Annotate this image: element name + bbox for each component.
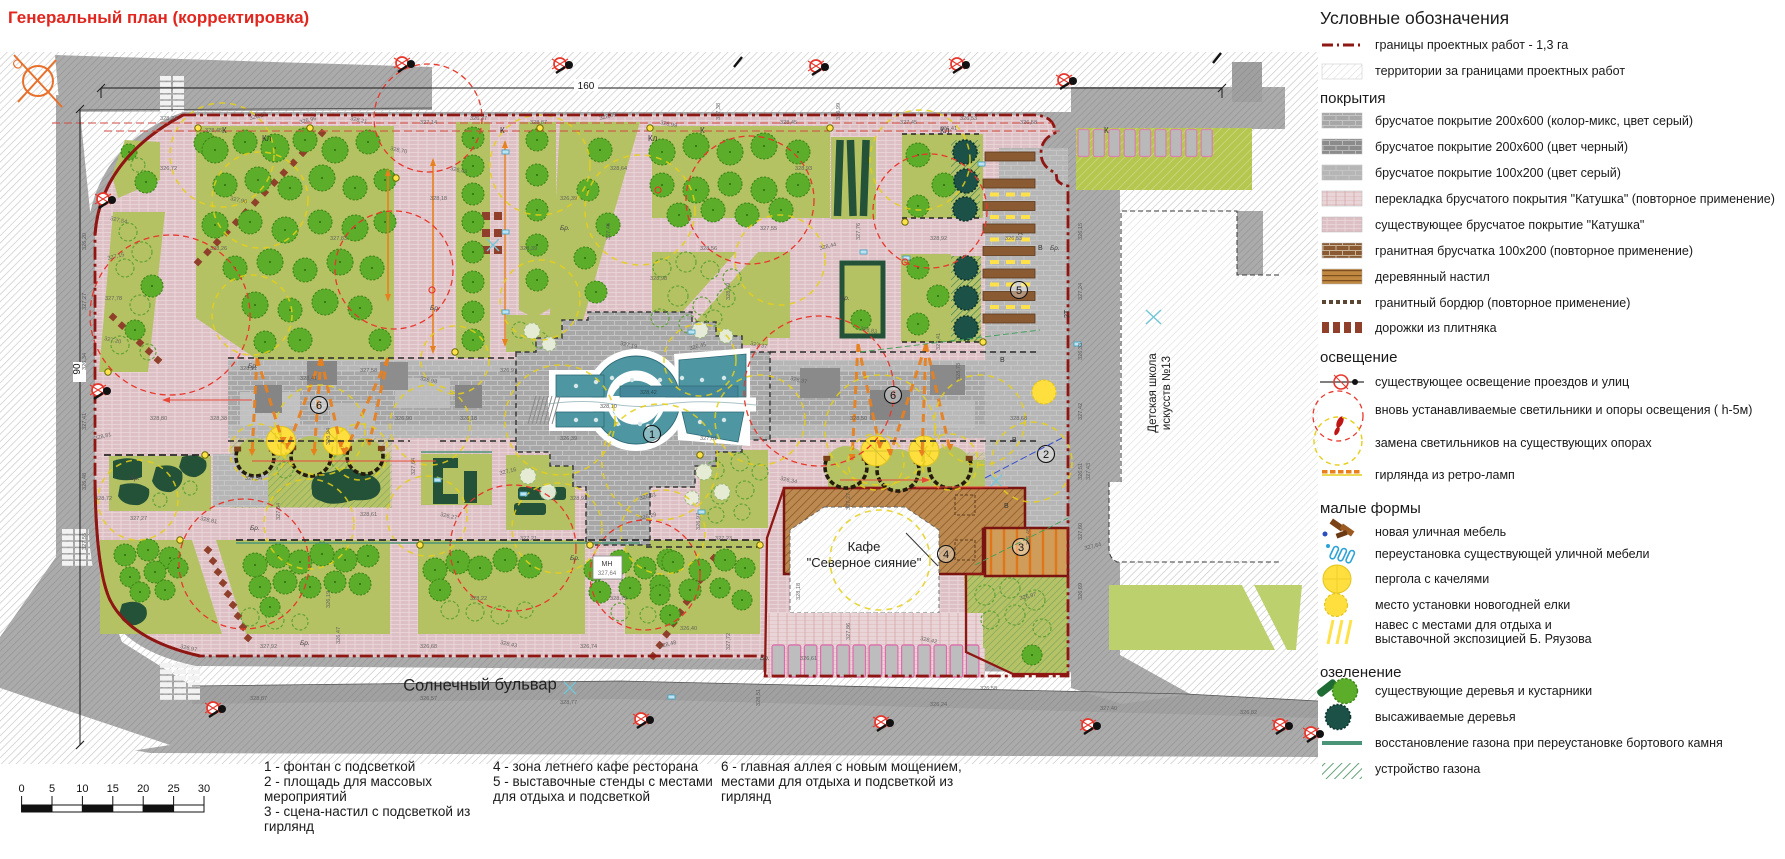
svg-text:327,27: 327,27: [846, 493, 852, 510]
svg-text:местами для отдыха и подсветко: местами для отдыха и подсветкой из: [721, 774, 953, 789]
svg-text:Бр.: Бр.: [248, 363, 258, 370]
svg-text:Бр.: Бр.: [760, 655, 770, 662]
svg-text:328,93: 328,93: [795, 166, 812, 172]
svg-text:0: 0: [19, 783, 25, 795]
svg-text:326,97: 326,97: [500, 368, 517, 374]
svg-text:Бр.: Бр.: [250, 525, 260, 532]
svg-text:326,24: 326,24: [930, 702, 947, 708]
svg-text:2Т: 2Т: [1064, 309, 1071, 318]
svg-text:новая уличная мебель: новая уличная мебель: [1375, 525, 1506, 539]
svg-text:существующие деревья и кустарн: существующие деревья и кустарники: [1375, 684, 1592, 698]
svg-text:замена светильников на существ: замена светильников на существующих опор…: [1375, 436, 1652, 450]
svg-text:В: В: [1012, 437, 1017, 444]
svg-text:326,20: 326,20: [82, 233, 88, 250]
svg-text:328,41: 328,41: [300, 376, 317, 382]
svg-text:328,42: 328,42: [640, 390, 657, 396]
svg-text:326,40: 326,40: [680, 626, 697, 632]
svg-text:Генеральный план (корректировк: Генеральный план (корректировка): [8, 8, 309, 27]
svg-text:В: В: [1038, 245, 1043, 252]
svg-text:160: 160: [578, 81, 595, 92]
svg-text:328,80: 328,80: [150, 416, 167, 422]
svg-text:326,61: 326,61: [800, 656, 817, 662]
svg-text:327,55: 327,55: [82, 533, 88, 550]
svg-text:гирлянд: гирлянд: [721, 789, 771, 804]
svg-text:5: 5: [49, 783, 55, 795]
svg-text:Кл: Кл: [262, 134, 272, 143]
svg-text:существующее брусчатое покрыти: существующее брусчатое покрытие "Катушка…: [1375, 218, 1644, 232]
svg-text:В: В: [1000, 357, 1005, 364]
svg-text:восстановление газона при пере: восстановление газона при переустановке …: [1375, 736, 1723, 750]
svg-text:327,86: 327,86: [846, 623, 852, 640]
svg-text:Бр.: Бр.: [1050, 245, 1060, 252]
svg-text:328,87: 328,87: [250, 696, 267, 702]
svg-text:327,41: 327,41: [82, 413, 88, 430]
svg-text:327,41: 327,41: [936, 333, 942, 350]
svg-text:326,68: 326,68: [420, 644, 437, 650]
svg-text:гирлянд: гирлянд: [264, 819, 314, 834]
svg-text:327,40: 327,40: [1100, 706, 1117, 712]
svg-text:326,82: 326,82: [1240, 710, 1257, 716]
svg-text:5: 5: [1016, 285, 1022, 297]
svg-text:328,92: 328,92: [930, 236, 947, 242]
svg-text:2 - площадь для массовых: 2 - площадь для массовых: [264, 774, 432, 789]
svg-text:327,45: 327,45: [900, 120, 917, 126]
svg-text:Детская школа: Детская школа: [1147, 353, 1159, 433]
svg-text:328,56: 328,56: [700, 246, 717, 252]
svg-text:326,39: 326,39: [560, 436, 577, 442]
svg-text:327,72: 327,72: [726, 633, 732, 650]
svg-text:326,90: 326,90: [395, 416, 412, 422]
svg-text:328,61: 328,61: [360, 512, 377, 518]
svg-text:"Северное сияние": "Северное сияние": [807, 555, 922, 570]
svg-text:326,53: 326,53: [960, 116, 977, 122]
svg-text:327,60: 327,60: [1078, 523, 1084, 540]
svg-text:Бр.: Бр.: [560, 225, 570, 232]
svg-text:327,58: 327,58: [360, 368, 377, 374]
svg-text:6: 6: [316, 400, 322, 412]
svg-text:328,18: 328,18: [430, 196, 447, 202]
svg-text:Условные обозначения: Условные обозначения: [1320, 8, 1509, 28]
svg-text:границы проектных работ - 1,3: границы проектных работ - 1,3 га: [1375, 38, 1568, 52]
svg-text:327,55: 327,55: [760, 226, 777, 232]
svg-text:327,14: 327,14: [420, 120, 437, 126]
svg-text:переустановка существующей ули: переустановка существующей уличной мебел…: [1375, 547, 1649, 561]
svg-text:Бр.: Бр.: [570, 555, 580, 562]
svg-text:326,47: 326,47: [336, 627, 342, 644]
svg-text:пергола с качелями: пергола с качелями: [1375, 572, 1489, 586]
svg-text:326,48: 326,48: [82, 473, 88, 490]
svg-text:В: В: [1004, 503, 1009, 510]
svg-text:327,27: 327,27: [130, 516, 147, 522]
svg-text:2: 2: [1043, 449, 1049, 461]
svg-text:3 - сцена-настил с подсветкой: 3 - сцена-настил с подсветкой из: [264, 804, 470, 819]
svg-text:326,99: 326,99: [836, 103, 842, 120]
svg-text:устройство газона: устройство газона: [1375, 762, 1480, 776]
svg-text:326,51: 326,51: [1078, 463, 1084, 480]
svg-text:Бр.: Бр.: [840, 295, 850, 302]
svg-text:327,21: 327,21: [520, 536, 537, 542]
svg-text:328,92: 328,92: [570, 496, 587, 502]
svg-text:327,78: 327,78: [105, 296, 122, 302]
svg-text:4: 4: [943, 549, 949, 561]
svg-text:328,98: 328,98: [650, 276, 667, 282]
svg-text:перекладка брусчатого покрытия: перекладка брусчатого покрытия "Катушка"…: [1375, 192, 1775, 206]
svg-text:326,15: 326,15: [1078, 223, 1084, 240]
svg-text:327,84: 327,84: [276, 503, 282, 520]
svg-text:328,39: 328,39: [520, 246, 537, 252]
svg-text:дорожки из плитняка: дорожки из плитняка: [1375, 321, 1497, 335]
svg-text:К: К: [222, 126, 227, 135]
svg-text:20: 20: [137, 783, 149, 795]
svg-text:327,61: 327,61: [700, 436, 717, 442]
svg-text:326,37: 326,37: [470, 116, 487, 122]
svg-text:10: 10: [76, 783, 88, 795]
svg-text:К: К: [1104, 126, 1109, 135]
svg-text:327,45: 327,45: [606, 223, 612, 240]
svg-text:327,83: 327,83: [330, 236, 347, 242]
svg-text:326,97: 326,97: [696, 513, 702, 530]
svg-text:1: 1: [649, 429, 655, 441]
svg-text:326,45: 326,45: [1026, 528, 1032, 545]
svg-text:К: К: [700, 126, 705, 135]
svg-text:328,26: 328,26: [210, 246, 227, 252]
svg-text:гирлянда из ретро-ламп: гирлянда из ретро-ламп: [1375, 468, 1515, 482]
svg-text:326,58: 326,58: [1020, 120, 1037, 126]
svg-text:искусств №13: искусств №13: [1161, 356, 1173, 430]
svg-text:для отдыха и подсветкой: для отдыха и подсветкой: [493, 789, 650, 804]
svg-text:328,45: 328,45: [205, 128, 222, 134]
svg-text:327,76: 327,76: [856, 223, 862, 240]
svg-text:326,58: 326,58: [980, 686, 997, 692]
svg-text:328,64: 328,64: [610, 166, 627, 172]
svg-text:1 - фонтан с подсветкой: 1 - фонтан с подсветкой: [264, 759, 415, 774]
svg-text:брусчатое покрытие 200х600 (ко: брусчатое покрытие 200х600 (колор-микс, …: [1375, 114, 1693, 128]
svg-text:326,53: 326,53: [1005, 236, 1022, 242]
svg-text:326,74: 326,74: [580, 644, 597, 650]
svg-text:328,49: 328,49: [726, 283, 732, 300]
svg-text:328,73: 328,73: [956, 363, 962, 380]
svg-text:6 - главная аллея с новым моще: 6 - главная аллея с новым мощением,: [721, 759, 962, 774]
svg-text:мероприятий: мероприятий: [264, 789, 347, 804]
svg-text:326,33: 326,33: [1078, 343, 1084, 360]
svg-text:328,45: 328,45: [780, 120, 797, 126]
svg-text:гранитный бордюр (повторное пр: гранитный бордюр (повторное применение): [1375, 296, 1630, 310]
svg-text:МН: МН: [602, 561, 613, 568]
svg-text:328,50: 328,50: [850, 416, 867, 422]
svg-text:4 - зона летнего кафе ресторан: 4 - зона летнего кафе ресторана: [493, 759, 699, 774]
svg-text:К: К: [500, 126, 505, 135]
svg-text:328,38: 328,38: [210, 416, 227, 422]
svg-text:326,39: 326,39: [560, 196, 577, 202]
svg-text:высаживаемые деревья: высаживаемые деревья: [1375, 710, 1516, 724]
svg-text:место установки новогодней елк: место установки новогодней елки: [1375, 598, 1570, 612]
svg-text:Бр.: Бр.: [430, 305, 440, 312]
svg-text:Кл: Кл: [648, 134, 658, 143]
svg-text:328,18: 328,18: [796, 583, 802, 600]
svg-text:328,68: 328,68: [1010, 416, 1027, 422]
svg-text:326,57: 326,57: [420, 696, 437, 702]
svg-text:326,19: 326,19: [326, 591, 332, 608]
svg-text:малые формы: малые формы: [1320, 500, 1421, 517]
svg-text:территории за границами проект: территории за границами проектных работ: [1375, 64, 1625, 78]
svg-text:327,38: 327,38: [716, 103, 722, 120]
svg-text:выставочной экспозицией Б. Ряу: выставочной экспозицией Б. Ряузова: [1375, 632, 1592, 646]
svg-text:326,69: 326,69: [1078, 583, 1084, 600]
svg-text:326,34: 326,34: [82, 353, 88, 370]
svg-text:покрытия: покрытия: [1320, 90, 1386, 107]
svg-text:гранитная брусчатка 100х200 (п: гранитная брусчатка 100х200 (повторное п…: [1375, 244, 1693, 258]
svg-text:брусчатое покрытие 200х600 (цв: брусчатое покрытие 200х600 (цвет черный): [1375, 140, 1628, 154]
svg-text:Бр.: Бр.: [130, 475, 140, 482]
svg-text:деревянный настил: деревянный настил: [1375, 270, 1490, 284]
svg-text:существующее освещение проездо: существующее освещение проездов и улиц: [1375, 375, 1629, 389]
svg-text:Бр.: Бр.: [300, 640, 310, 647]
svg-text:25: 25: [167, 783, 179, 795]
svg-text:Кл: Кл: [940, 126, 950, 135]
svg-text:326,18: 326,18: [460, 416, 477, 422]
svg-text:327,64: 327,64: [411, 458, 417, 475]
svg-text:328,77: 328,77: [560, 700, 577, 706]
svg-text:брусчатое покрытие 100х200 (цв: брусчатое покрытие 100х200 (цвет серый): [1375, 166, 1621, 180]
svg-text:озеленение: озеленение: [1320, 664, 1401, 681]
svg-text:вновь устанавливаемые светильн: вновь устанавливаемые светильники и опор…: [1375, 403, 1752, 417]
svg-text:327,64: 327,64: [598, 571, 617, 577]
svg-text:327,42: 327,42: [1078, 403, 1084, 420]
svg-text:327,24: 327,24: [1078, 283, 1084, 300]
svg-text:3: 3: [1018, 542, 1024, 554]
svg-text:навес с местами для отдыха и: навес с местами для отдыха и: [1375, 618, 1552, 632]
svg-text:6: 6: [890, 390, 896, 402]
svg-text:327,34: 327,34: [245, 476, 262, 482]
svg-text:326,72: 326,72: [160, 166, 177, 172]
svg-text:Солнечный бульвар: Солнечный бульвар: [403, 675, 557, 694]
svg-text:328,79: 328,79: [610, 596, 627, 602]
svg-text:Кафе: Кафе: [848, 539, 881, 554]
svg-text:15: 15: [107, 783, 119, 795]
svg-text:5 - выставочные стенды с места: 5 - выставочные стенды с местами: [493, 774, 713, 789]
svg-text:328,87: 328,87: [530, 120, 547, 126]
svg-text:328,51: 328,51: [756, 689, 762, 706]
svg-text:327,23: 327,23: [715, 536, 732, 542]
svg-text:освещение: освещение: [1320, 349, 1398, 366]
svg-text:326,94: 326,94: [326, 428, 332, 445]
svg-text:327,92: 327,92: [260, 644, 277, 650]
svg-text:328,72: 328,72: [95, 496, 112, 502]
svg-text:328,24: 328,24: [160, 116, 177, 122]
svg-text:327,43: 327,43: [1086, 463, 1092, 480]
svg-text:30: 30: [198, 783, 210, 795]
svg-text:328,22: 328,22: [470, 596, 487, 602]
svg-text:327,27: 327,27: [82, 293, 88, 310]
